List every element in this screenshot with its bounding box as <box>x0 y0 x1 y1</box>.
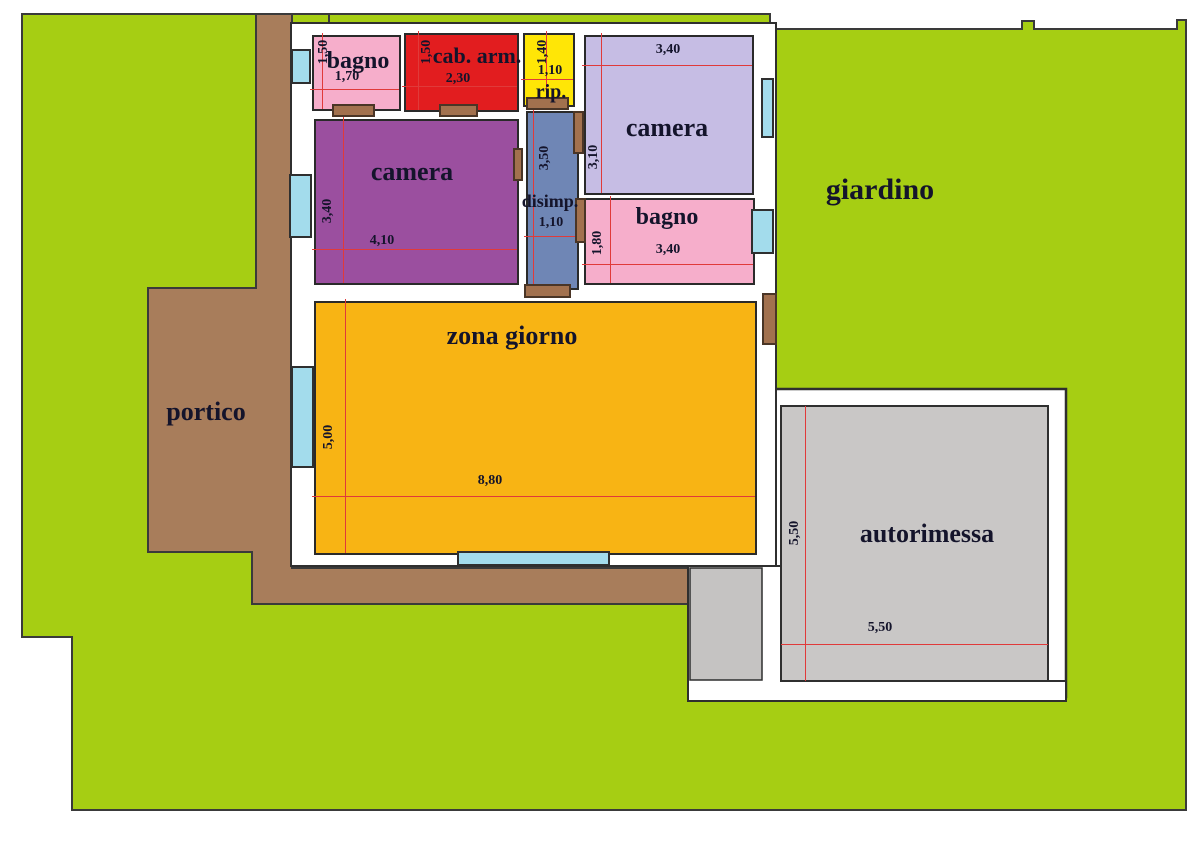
dim-bagno2-width: 3,40 <box>656 243 681 257</box>
dim-zona-giorno-height: 5,00 <box>322 425 336 450</box>
room-label-bagno2: bagno <box>636 205 699 229</box>
room-label-cab-arm: cab. arm. <box>433 45 522 67</box>
area-label-portico: portico <box>166 399 245 425</box>
room-label-rip: rip. <box>536 82 567 102</box>
room-label-camera-ovest: camera <box>371 159 453 185</box>
dimension-line <box>312 249 517 250</box>
room-label-autorimessa: autorimessa <box>860 521 994 547</box>
driveway-area <box>690 568 762 680</box>
dim-camera-ovest-width: 4,10 <box>370 234 395 248</box>
window <box>289 174 312 238</box>
interior-door <box>439 104 478 117</box>
dim-camera-nord-height: 3,10 <box>587 145 601 170</box>
dim-bagno1-width: 1,70 <box>335 70 360 84</box>
dimension-line <box>781 644 1048 645</box>
dim-rip-width: 1,10 <box>538 64 563 78</box>
room-label-camera-nord: camera <box>626 115 708 141</box>
dim-camera-ovest-height: 3,40 <box>321 199 335 224</box>
dimension-line <box>805 406 806 681</box>
dim-zona-giorno-width: 8,80 <box>478 474 503 488</box>
area-label-giardino: giardino <box>826 175 934 205</box>
dim-disimpegno-height: 3,50 <box>538 146 552 171</box>
interior-door <box>573 111 584 154</box>
room-label-disimpegno: disimp. <box>522 192 579 210</box>
dimension-line <box>582 264 753 265</box>
dimension-line <box>601 33 602 193</box>
interior-door <box>524 284 571 298</box>
dimension-line <box>524 236 577 237</box>
window <box>291 366 314 468</box>
dimension-line <box>343 117 344 283</box>
dim-disimpegno-width: 1,10 <box>539 216 564 230</box>
window <box>457 551 610 566</box>
window <box>751 209 774 254</box>
window <box>291 49 311 84</box>
dim-autorimessa-width: 5,50 <box>868 621 893 635</box>
dim-bagno1-height: 1,50 <box>317 40 331 65</box>
floor-plan: bagno 1,70 1,50 cab. arm. 2,30 1,50 rip.… <box>0 0 1200 850</box>
dimension-line <box>402 86 517 87</box>
dim-autorimessa-height: 5,50 <box>788 521 802 546</box>
dim-bagno2-height: 1,80 <box>591 231 605 256</box>
room-label-zona-giorno: zona giorno <box>447 323 578 349</box>
dim-rip-height: 1,40 <box>536 40 550 65</box>
dim-camera-nord-width: 3,40 <box>656 43 681 57</box>
interior-door <box>332 104 375 117</box>
window <box>761 78 774 138</box>
exterior-door <box>762 293 777 345</box>
dimension-line <box>345 299 346 553</box>
dimension-line <box>521 79 573 80</box>
dimension-line <box>610 196 611 283</box>
dimension-line <box>310 89 399 90</box>
interior-door <box>513 148 523 181</box>
dim-cab-arm-height: 1,50 <box>420 40 434 65</box>
dimension-line <box>312 496 755 497</box>
room-camera-ovest <box>314 119 519 285</box>
dim-cab-arm-width: 2,30 <box>446 72 471 86</box>
dimension-line <box>582 65 752 66</box>
